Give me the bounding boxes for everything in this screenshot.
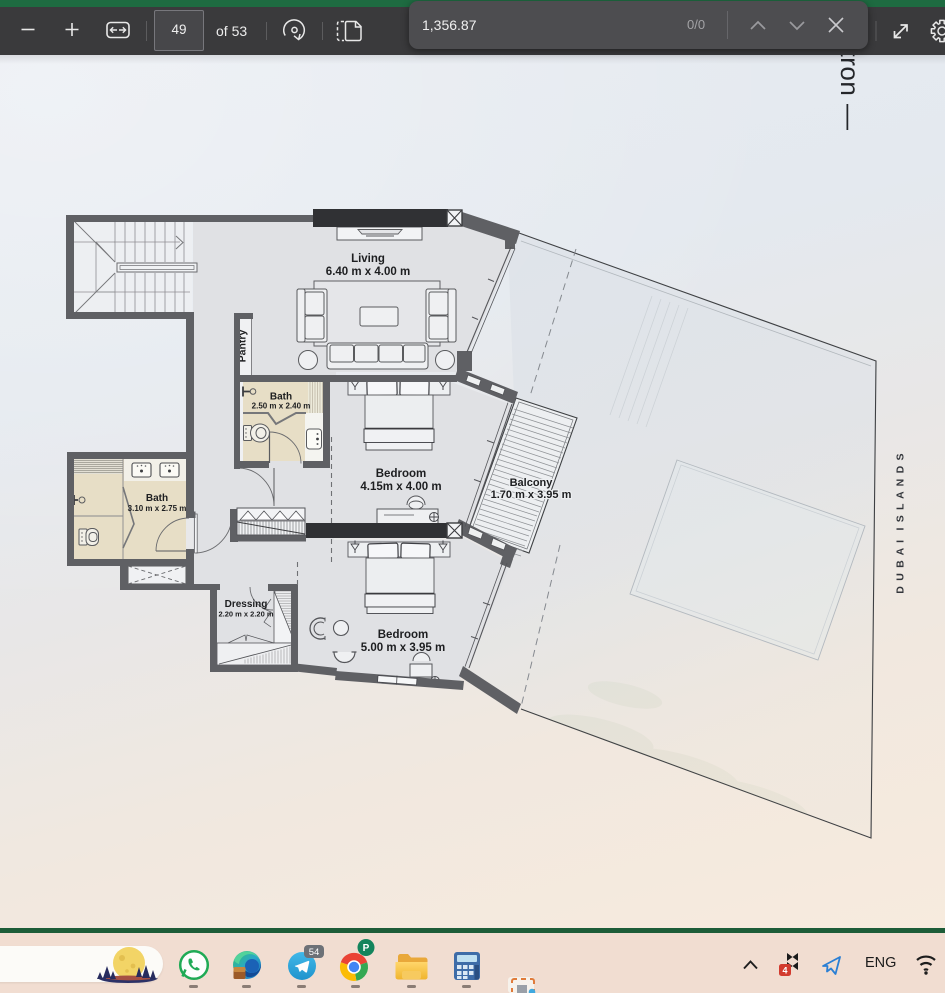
- svg-text:Balcony: Balcony: [510, 477, 554, 489]
- svg-text:Bedroom: Bedroom: [378, 629, 428, 641]
- svg-text:Dressing: Dressing: [225, 599, 268, 610]
- svg-text:2.20 m x 2.20 m: 2.20 m x 2.20 m: [218, 610, 273, 619]
- svg-text:Bedroom: Bedroom: [376, 468, 426, 480]
- svg-text:4.15m x 4.00 m: 4.15m x 4.00 m: [360, 481, 441, 493]
- svg-text:D U B A I I S L A N D S: D U B A I I S L A N D S: [895, 452, 907, 593]
- svg-text:6.40 m x 4.00 m: 6.40 m x 4.00 m: [326, 266, 410, 278]
- svg-text:3.10 m x 2.75 m: 3.10 m x 2.75 m: [128, 504, 187, 513]
- svg-text:Bath: Bath: [146, 493, 168, 504]
- svg-text:tron —: tron —: [835, 49, 865, 130]
- svg-text:P: P: [363, 943, 370, 954]
- svg-text:54: 54: [309, 947, 320, 958]
- svg-text:5.00 m x 3.95 m: 5.00 m x 3.95 m: [361, 642, 445, 654]
- svg-text:1.70 m x 3.95 m: 1.70 m x 3.95 m: [491, 489, 572, 501]
- svg-text:Living: Living: [351, 253, 385, 265]
- svg-text:2.50 m x 2.40 m: 2.50 m x 2.40 m: [252, 402, 311, 411]
- svg-text:4: 4: [782, 966, 787, 976]
